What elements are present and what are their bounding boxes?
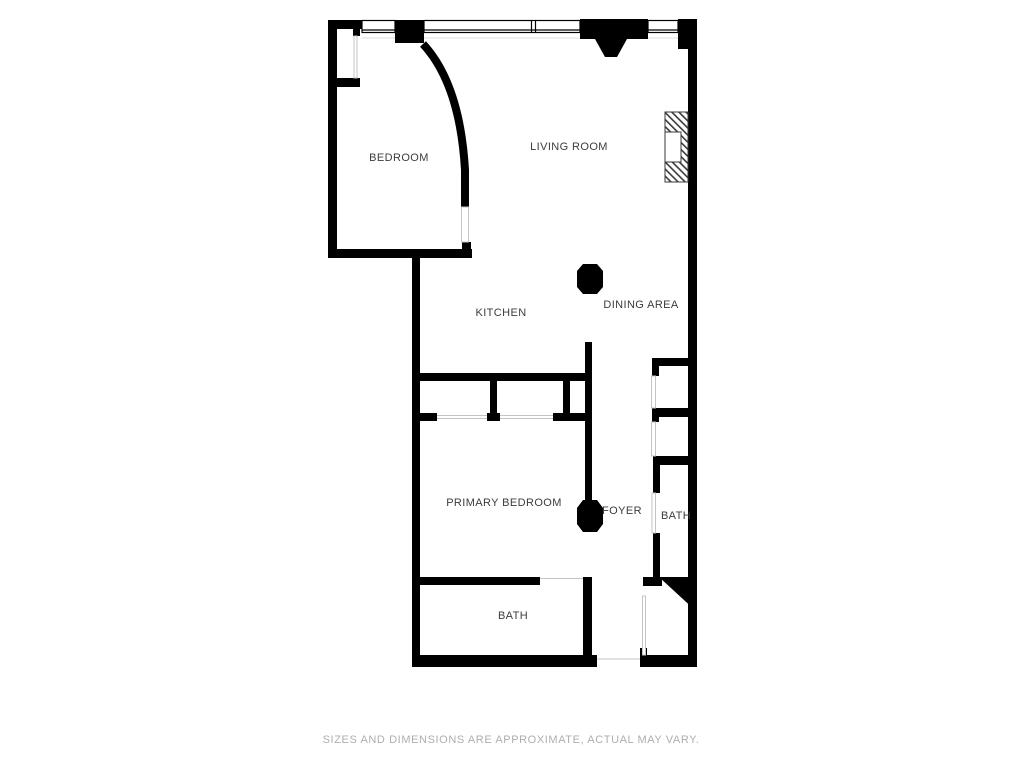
room-label-foyer: FOYER [602, 505, 642, 517]
wall-bedroom-closet [337, 78, 360, 87]
wall-hall-west [585, 342, 592, 502]
wall-bedroom-door-stub [462, 242, 471, 258]
wall-east-closet-2-stub [652, 408, 659, 422]
firebox [665, 132, 681, 162]
floor-plan-drawing [0, 0, 1024, 768]
disclaimer-text: SIZES AND DIMENSIONS ARE APPROXIMATE, AC… [323, 734, 700, 746]
wall-top-center [580, 19, 648, 39]
door-entry-closet [643, 596, 646, 655]
room-label-living-room: LIVING ROOM [530, 141, 608, 153]
wall-right-exterior [688, 20, 697, 667]
wall-bedroom-south [328, 249, 472, 258]
walls [328, 19, 697, 667]
wall-west-exterior [412, 249, 420, 661]
fireplace-icon [665, 112, 688, 182]
door-east-closet-1 [652, 376, 656, 408]
wall-closet-rail-a [412, 413, 437, 421]
wall-bath-west-lower [653, 533, 660, 578]
door-east-closet-2 [652, 422, 656, 456]
wall-closet-divider-1 [490, 381, 497, 415]
wall-pilaster [595, 39, 627, 57]
door-bedroom [462, 207, 469, 242]
wall-kitchen-south [412, 373, 592, 381]
column-dining-icon [577, 264, 603, 294]
door-upper-bath [652, 493, 656, 533]
room-label-primary-bedroom: PRIMARY BEDROOM [446, 497, 562, 509]
column-foyer-icon [577, 500, 603, 532]
wall-primary-south [412, 577, 540, 585]
wall-entry-closet-top [643, 577, 662, 586]
wall-east-closet-1-stub [652, 358, 659, 376]
door-openings [354, 36, 656, 659]
wall-bath-west-upper [653, 456, 660, 493]
window-living-room [424, 21, 580, 33]
window-dining [648, 21, 678, 33]
wall-bath-east [583, 577, 592, 667]
floor-plan: BEDROOM LIVING ROOM KITCHEN DINING AREA … [0, 0, 1024, 768]
wall-left-exterior [328, 20, 337, 258]
room-label-bedroom: BEDROOM [369, 152, 429, 164]
room-label-kitchen: KITCHEN [475, 307, 526, 319]
door-bedroom-closet [354, 36, 357, 78]
wall-bottom-west [412, 655, 597, 667]
wall-closet-rail-c [553, 413, 585, 421]
wall-curved-bedroom [423, 44, 465, 207]
room-label-dining-area: DINING AREA [603, 299, 678, 311]
wall-bedroom-closet-stub [353, 28, 360, 36]
wall-bottom-east [641, 655, 697, 667]
window-bedroom [362, 21, 395, 33]
wall-closet-divider-2 [563, 381, 570, 417]
room-label-bath-upper: BATH [661, 510, 691, 522]
wall-top-block [395, 20, 424, 43]
room-label-bath-lower: BATH [498, 610, 528, 622]
wall-closet-rail-b [487, 413, 500, 421]
